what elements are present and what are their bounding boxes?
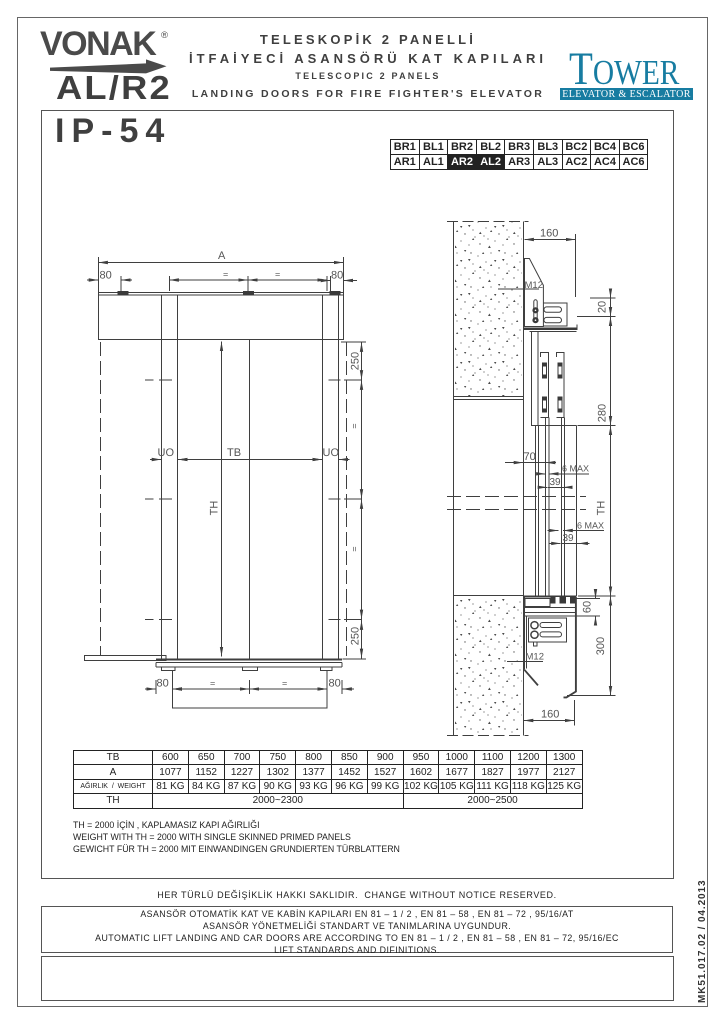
svg-text:M12: M12 bbox=[525, 280, 543, 291]
svg-text:250: 250 bbox=[350, 352, 362, 370]
svg-text:6 MAX: 6 MAX bbox=[562, 464, 589, 474]
svg-text:M12: M12 bbox=[526, 652, 544, 663]
svg-text:TB: TB bbox=[227, 447, 241, 459]
svg-text:UO: UO bbox=[158, 447, 175, 459]
svg-text:250: 250 bbox=[350, 627, 362, 645]
svg-text:80: 80 bbox=[100, 270, 112, 282]
svg-text:6 MAX: 6 MAX bbox=[577, 521, 604, 531]
svg-text:300: 300 bbox=[595, 637, 607, 655]
svg-text:280: 280 bbox=[597, 404, 609, 422]
svg-text:20: 20 bbox=[597, 301, 609, 313]
svg-text:160: 160 bbox=[540, 228, 558, 240]
svg-text:UO: UO bbox=[323, 447, 340, 459]
svg-text:=: = bbox=[282, 679, 287, 689]
svg-text:60: 60 bbox=[582, 601, 594, 613]
svg-text:=: = bbox=[210, 679, 215, 689]
svg-text:160: 160 bbox=[541, 709, 559, 721]
svg-text:80: 80 bbox=[157, 678, 169, 690]
svg-text:70: 70 bbox=[524, 451, 536, 463]
svg-text:39: 39 bbox=[550, 477, 562, 488]
svg-text:=: = bbox=[275, 270, 280, 280]
svg-text:80: 80 bbox=[329, 678, 341, 690]
svg-text:80: 80 bbox=[331, 270, 343, 282]
svg-text:A: A bbox=[218, 250, 226, 262]
svg-text:TH: TH bbox=[209, 501, 221, 516]
svg-text:=: = bbox=[223, 270, 228, 280]
svg-text:=: = bbox=[350, 423, 360, 428]
svg-text:39: 39 bbox=[563, 533, 575, 544]
svg-text:=: = bbox=[350, 546, 360, 551]
svg-text:TH: TH bbox=[596, 501, 608, 516]
